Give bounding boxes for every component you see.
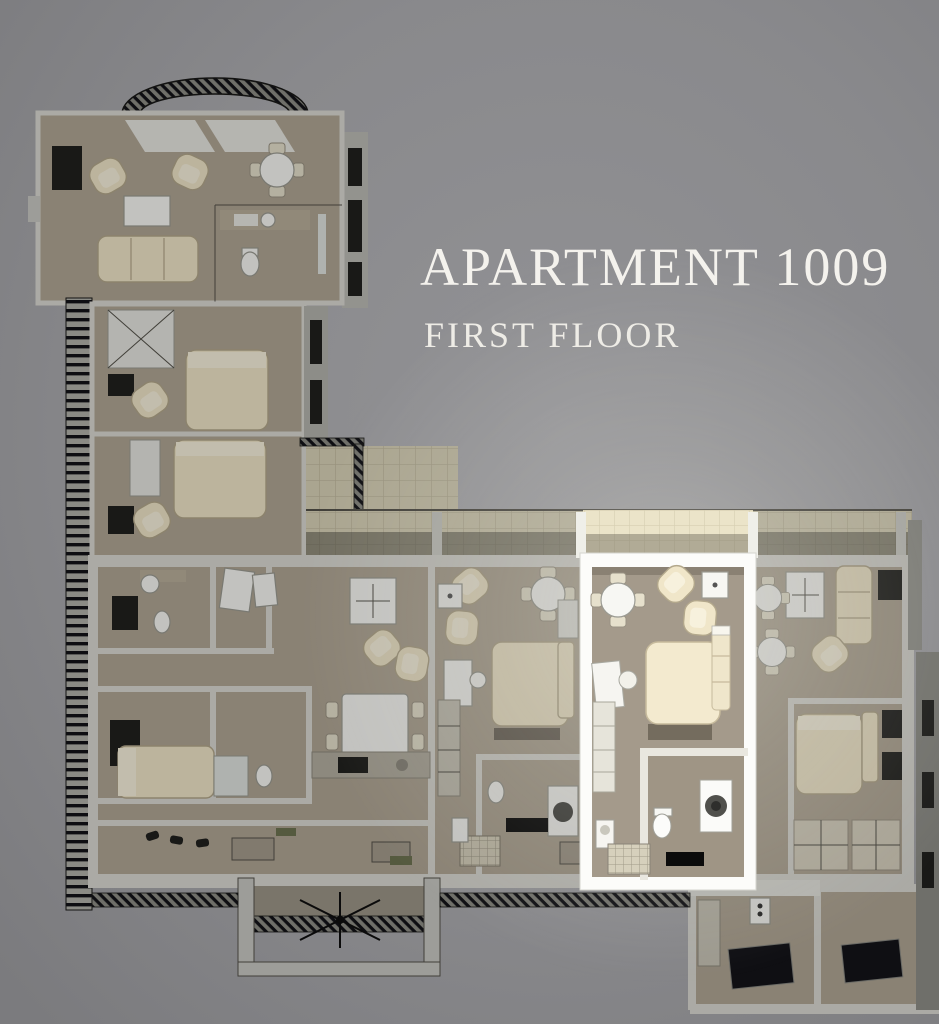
unit-highlighted <box>576 510 758 890</box>
floor-plan-rendering <box>0 0 939 1024</box>
bed <box>646 642 720 724</box>
counter-sink <box>841 939 903 983</box>
couch <box>712 630 730 710</box>
page-title: APARTMENT 1009 <box>420 236 890 298</box>
page-subtitle: FIRST FLOOR <box>424 314 681 356</box>
coffee-table <box>124 196 170 226</box>
screenshot-root: APARTMENT 1009 FIRST FLOOR <box>0 0 939 1024</box>
sofa <box>98 236 198 282</box>
toilet <box>256 765 272 787</box>
kitchenette <box>593 702 615 792</box>
tower-unit <box>28 78 368 308</box>
bathroom <box>640 748 748 880</box>
bath-mat-dark <box>666 852 704 866</box>
toilet <box>154 611 170 633</box>
sink <box>141 575 159 593</box>
desk-chair <box>619 671 637 689</box>
vertical-wing <box>92 304 328 558</box>
toilet <box>653 814 671 838</box>
tiled-mat <box>608 844 650 874</box>
toilet <box>241 252 259 276</box>
tv-cabinet <box>52 146 82 190</box>
